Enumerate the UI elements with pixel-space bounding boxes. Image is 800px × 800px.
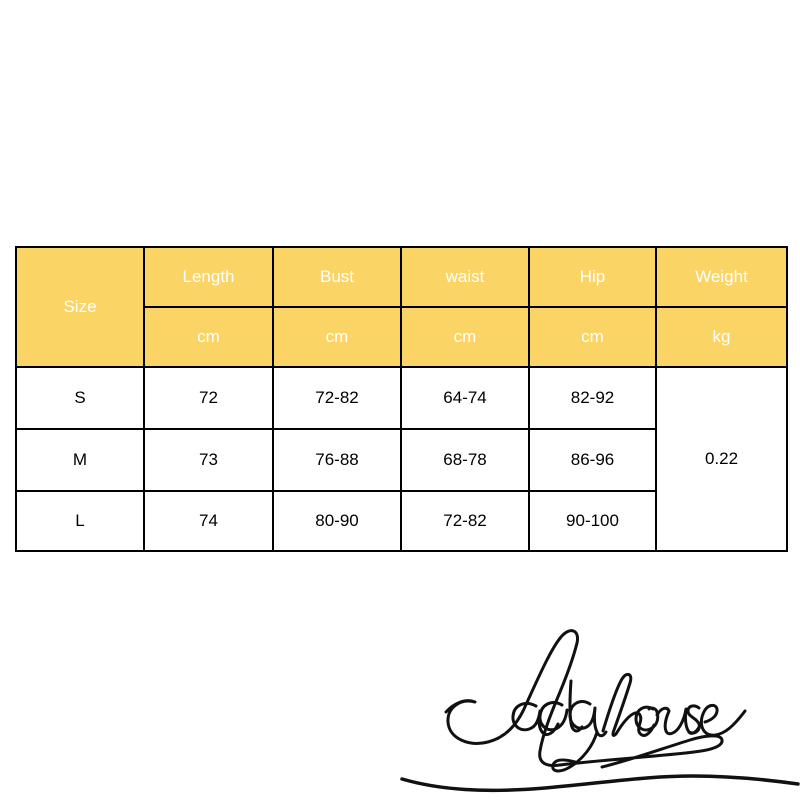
cell-l-waist: 72-82	[401, 491, 529, 551]
product-size-chart-image: Size Length Bust waist Hip Weight cm cm …	[0, 0, 800, 800]
header-row-labels: Size Length Bust waist Hip Weight	[16, 247, 787, 307]
unit-cell-waist: cm	[401, 307, 529, 367]
header-cell-hip: Hip	[529, 247, 656, 307]
cell-l-hip: 90-100	[529, 491, 656, 551]
logo-underline-wave	[402, 776, 798, 790]
ladyhouse-signature-drawing: Ladyhouse	[400, 595, 800, 800]
unit-cell-bust: cm	[273, 307, 401, 367]
header-cell-length: Length	[144, 247, 273, 307]
cell-m-bust: 76-88	[273, 429, 401, 491]
unit-cell-hip: cm	[529, 307, 656, 367]
cell-s-hip: 82-92	[529, 367, 656, 429]
cell-m-hip: 86-96	[529, 429, 656, 491]
unit-cell-weight: kg	[656, 307, 787, 367]
cell-s-waist: 64-74	[401, 367, 529, 429]
logo-stroke-h	[603, 674, 654, 735]
logo-stroke-e	[701, 705, 745, 735]
header-cell-weight: Weight	[656, 247, 787, 307]
logo-stroke-ou	[636, 707, 701, 734]
logo-stroke-s	[688, 706, 699, 733]
header-cell-waist: waist	[401, 247, 529, 307]
header-cell-bust: Bust	[273, 247, 401, 307]
unit-cell-length: cm	[144, 307, 273, 367]
cell-m-length: 73	[144, 429, 273, 491]
ladyhouse-logo: Ladyhouse Ladyhouse	[400, 595, 800, 800]
cell-weight-merged: 0.22	[656, 367, 787, 551]
cell-m-size: M	[16, 429, 144, 491]
cell-l-bust: 80-90	[273, 491, 401, 551]
cell-s-length: 72	[144, 367, 273, 429]
size-chart-table: Size Length Bust waist Hip Weight cm cm …	[15, 246, 788, 552]
cell-l-length: 74	[144, 491, 273, 551]
cell-l-size: L	[16, 491, 144, 551]
table-row-s: S 72 72-82 64-74 82-92 0.22	[16, 367, 787, 429]
header-cell-size: Size	[16, 247, 144, 367]
logo-stroke-L	[446, 631, 722, 767]
cell-s-bust: 72-82	[273, 367, 401, 429]
cell-m-waist: 68-78	[401, 429, 529, 491]
cell-s-size: S	[16, 367, 144, 429]
